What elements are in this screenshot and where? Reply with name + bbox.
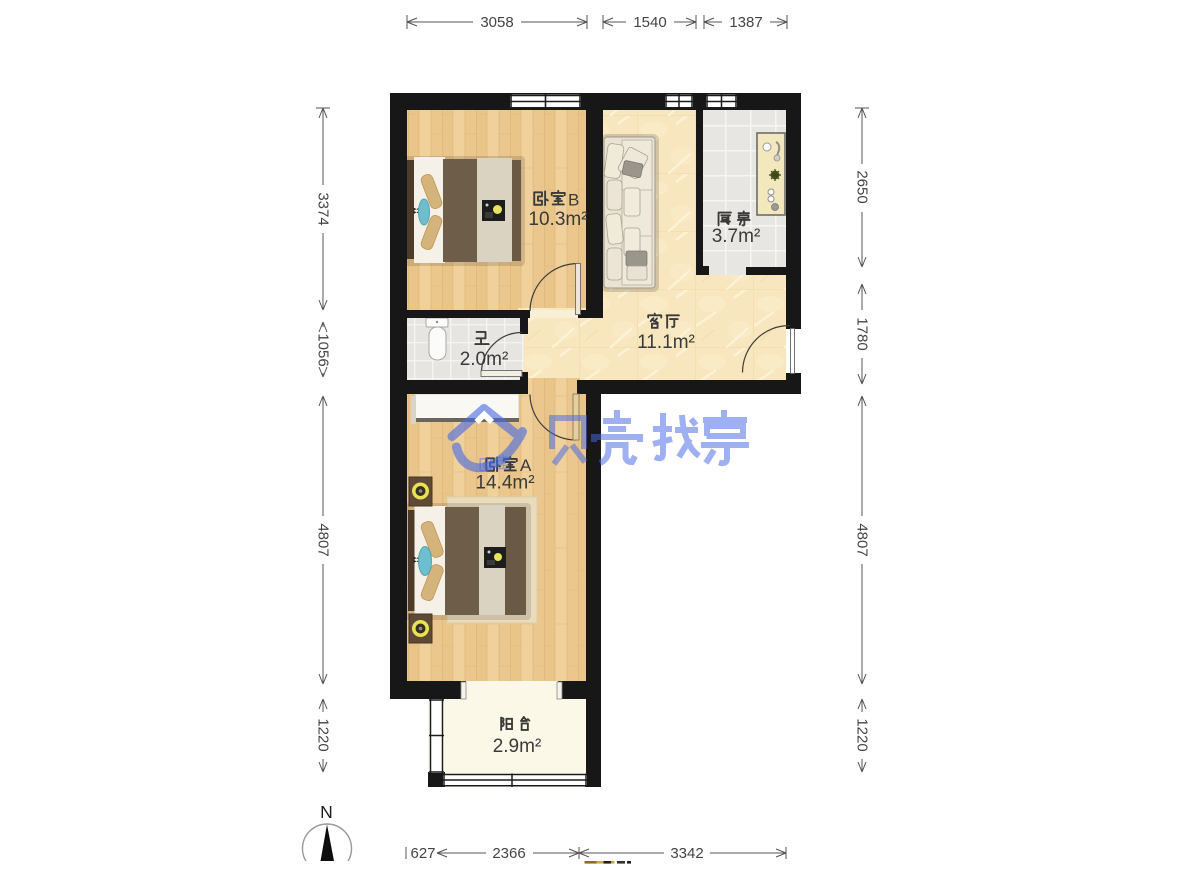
svg-text:1220: 1220 [315,718,332,751]
svg-text:14.4m²: 14.4m² [475,473,534,494]
svg-text:3374: 3374 [315,192,332,225]
svg-text:3342: 3342 [670,845,703,862]
svg-text:11.1m²: 11.1m² [637,332,695,353]
svg-text:1540: 1540 [633,14,666,31]
svg-text:1056: 1056 [315,333,332,366]
svg-text:2.9m²: 2.9m² [493,736,542,757]
svg-text:1780: 1780 [854,317,871,350]
svg-text:2650: 2650 [854,170,871,203]
svg-text:1387: 1387 [729,14,762,31]
svg-text:N: N [320,802,333,822]
svg-text:B: B [568,191,579,210]
svg-text:2.0m²: 2.0m² [460,349,509,370]
svg-text:3058: 3058 [480,14,513,31]
svg-text:1220: 1220 [854,718,871,751]
svg-text:10.3m²: 10.3m² [528,209,587,230]
svg-text:4807: 4807 [315,523,332,556]
svg-text:4807: 4807 [854,523,871,556]
svg-text:2366: 2366 [492,845,525,862]
svg-text:3.7m²: 3.7m² [712,226,761,247]
svg-text:627: 627 [410,845,435,862]
